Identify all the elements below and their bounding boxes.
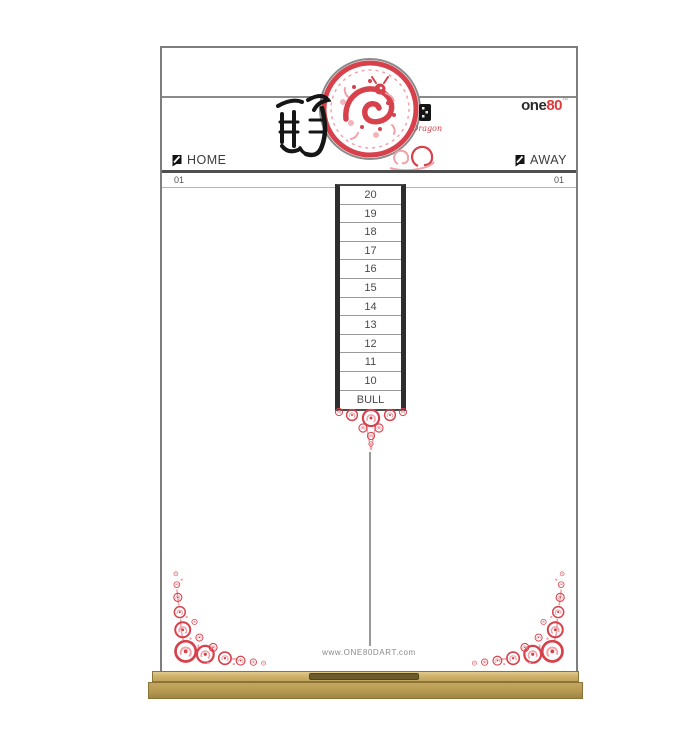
score-cell: 10 bbox=[340, 372, 401, 391]
scoreboard: Dragon one80™ HOME AWAY 01 01 201 bbox=[160, 46, 578, 675]
trademark-symbol: ™ bbox=[562, 98, 568, 104]
home-header: HOME bbox=[171, 153, 227, 167]
home-label: HOME bbox=[187, 153, 227, 167]
header-divider bbox=[162, 170, 576, 173]
brand-prefix: one bbox=[521, 97, 546, 114]
wooden-stand-base bbox=[148, 682, 583, 699]
score-number-column: 2019181716151413121110BULL bbox=[335, 184, 406, 411]
score-cell: 20 bbox=[340, 186, 401, 205]
stand-groove bbox=[309, 673, 419, 680]
score-cell: 12 bbox=[340, 335, 401, 354]
cloud-swirl-icon bbox=[388, 136, 436, 172]
dart-flight-icon bbox=[514, 154, 526, 167]
wooden-stand-ledge bbox=[152, 671, 579, 682]
floral-v-divider-icon bbox=[330, 406, 412, 454]
center-divider-line bbox=[369, 452, 371, 646]
seal-stamp-icon bbox=[418, 103, 432, 122]
website-url: www.ONE80DART.com bbox=[162, 648, 576, 657]
score-cell: 18 bbox=[340, 223, 401, 242]
brand-logo: one80™ bbox=[521, 98, 568, 113]
score-cell: 17 bbox=[340, 242, 401, 261]
score-cell: 15 bbox=[340, 279, 401, 298]
score-cell: 19 bbox=[340, 205, 401, 224]
dragon-label: Dragon bbox=[412, 124, 442, 133]
away-game-label: 01 bbox=[554, 175, 564, 185]
home-game-label: 01 bbox=[174, 175, 184, 185]
away-label: AWAY bbox=[530, 153, 567, 167]
score-cell: 16 bbox=[340, 260, 401, 279]
brand-suffix: 80 bbox=[546, 97, 562, 114]
dragon-calligraphy-icon bbox=[272, 90, 334, 164]
score-cell: 13 bbox=[340, 316, 401, 335]
dart-flight-icon bbox=[171, 154, 183, 167]
away-header: AWAY bbox=[514, 153, 567, 167]
product-photo: Dragon one80™ HOME AWAY 01 01 201 bbox=[0, 0, 676, 740]
score-cell: 11 bbox=[340, 353, 401, 372]
score-cell: 14 bbox=[340, 298, 401, 317]
